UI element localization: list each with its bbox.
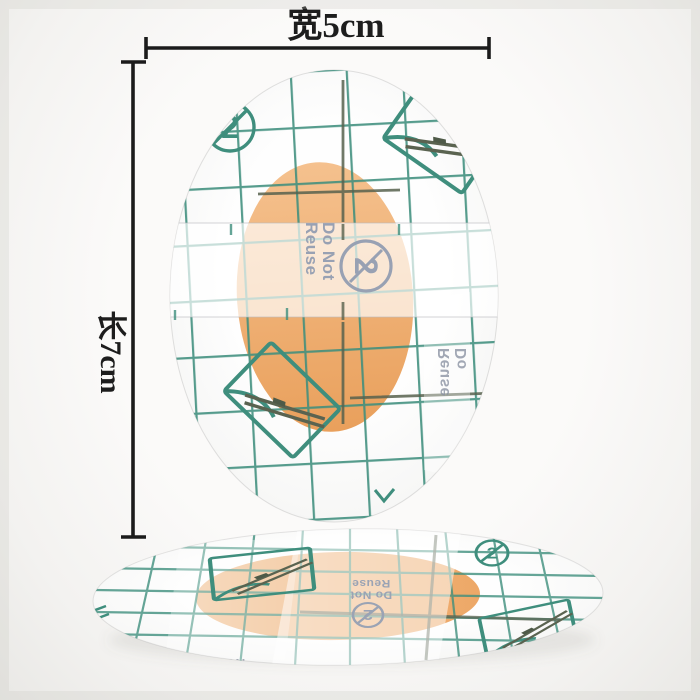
do-not-text: Do Not xyxy=(350,589,392,600)
do-not-reuse-label-flat: Do Not Reuse xyxy=(350,577,392,600)
reuse-text: Reuse xyxy=(302,222,321,276)
do-not-reuse-label-main: Do Not Reuse xyxy=(302,222,338,281)
length-dimension: 长7cm xyxy=(94,62,146,537)
width-dimension-label: 宽5cm xyxy=(287,5,384,45)
bandage-product-photo: 2 Do Not Reuse 2 Reuse xyxy=(0,0,700,700)
flat-release-tab-left xyxy=(165,540,300,660)
reuse-text: Reuse xyxy=(352,577,390,588)
main-bandage: 2 Reuse Do Do Not Reuse 2 xyxy=(160,60,510,540)
width-dimension: 宽5cm xyxy=(146,5,489,59)
length-dimension-label: 长7cm xyxy=(94,310,127,393)
flat-bandage: 2 Do Not Reuse 2 Reuse xyxy=(90,514,605,671)
svg-text:Reuse: Reuse xyxy=(436,348,453,397)
svg-text:Do: Do xyxy=(453,348,470,369)
product-photo-canvas: 2 Do Not Reuse 2 Reuse xyxy=(0,0,700,700)
